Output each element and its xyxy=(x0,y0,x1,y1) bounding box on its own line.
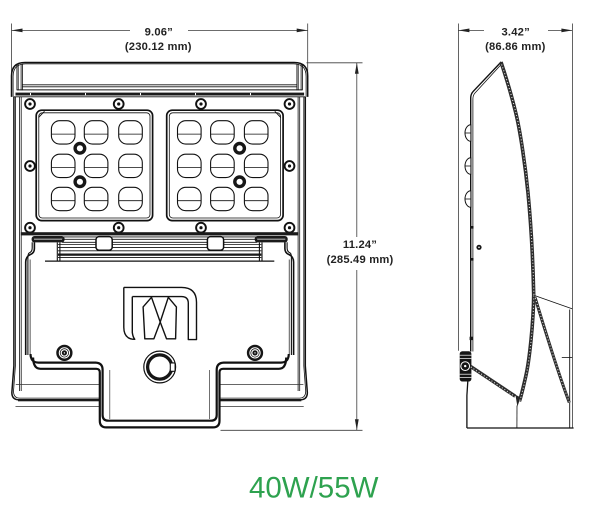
svg-text:(86.86 mm): (86.86 mm) xyxy=(485,41,546,53)
svg-text:3.42”: 3.42” xyxy=(502,26,530,38)
svg-text:11.24”: 11.24” xyxy=(343,239,377,251)
svg-text:(285.49 mm): (285.49 mm) xyxy=(327,254,394,266)
svg-text:9.06”: 9.06” xyxy=(145,26,173,38)
svg-text:(230.12 mm): (230.12 mm) xyxy=(125,41,192,53)
svg-text:40W/55W: 40W/55W xyxy=(249,472,379,505)
